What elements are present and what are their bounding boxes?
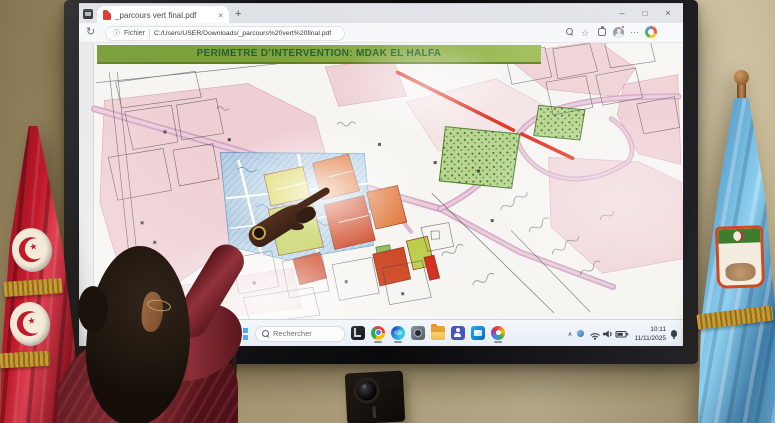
pdf-icon <box>103 10 111 20</box>
tab-title: _parcours vert final.pdf <box>115 11 214 20</box>
windows-taskbar: Rechercher ∧ <box>79 319 683 346</box>
status-icon[interactable] <box>577 330 584 337</box>
browser-tab[interactable]: _parcours vert final.pdf × <box>97 6 229 24</box>
search-icon <box>262 330 269 337</box>
address-scheme-label: Fichier <box>124 30 145 37</box>
dark-app-icon <box>351 326 365 340</box>
volume-icon <box>603 330 609 337</box>
taskbar-app-outlook[interactable] <box>471 325 485 343</box>
webcam <box>345 371 406 423</box>
active-app-indicator <box>394 341 402 343</box>
tray-status-icons[interactable] <box>589 328 629 340</box>
tv-screen: _parcours vert final.pdf × + – □ × ↻ ⓘ F… <box>64 0 698 364</box>
more-menu-icon[interactable]: … <box>630 24 639 36</box>
windows-desktop: _parcours vert final.pdf × + – □ × ↻ ⓘ F… <box>79 3 683 346</box>
bookmark-star-icon[interactable]: ☆ <box>581 27 589 39</box>
taskbar-clock[interactable]: 10:11 11/11/2025 <box>634 325 666 343</box>
clock-date: 11/11/2025 <box>634 334 666 343</box>
flag-pole-finial <box>734 70 749 85</box>
pdf-viewer: PERIMETRE D’INTERVENTION: MDAK EL HALFA <box>79 43 683 319</box>
wifi-icon <box>594 337 596 339</box>
camera-app-icon <box>411 326 425 340</box>
new-tab-button[interactable]: + <box>235 7 241 21</box>
map-pdf-page[interactable] <box>79 43 683 319</box>
emblem-ribbon <box>718 228 760 243</box>
edge-icon <box>391 326 405 340</box>
reload-icon[interactable]: ↻ <box>86 25 95 38</box>
taskbar-app-explorer[interactable] <box>431 325 445 343</box>
address-bar[interactable]: ⓘ Fichier C:/Users/USER/Downloads/_parco… <box>105 26 345 41</box>
address-url: C:/Users/USER/Downloads/_parcours%20vert… <box>154 30 337 37</box>
notification-badge <box>621 25 625 29</box>
window-minimize-button[interactable]: – <box>611 4 633 23</box>
taskbar-search[interactable]: Rechercher <box>255 326 345 342</box>
info-icon[interactable]: ⓘ <box>113 28 120 38</box>
taskbar-app-dark[interactable] <box>351 325 365 343</box>
search-icon[interactable] <box>566 28 573 35</box>
taskbar-app-edge[interactable] <box>391 325 405 343</box>
municipal-flag <box>693 58 775 423</box>
taskbar-center: Rechercher <box>235 320 505 346</box>
webcam-lens-icon <box>353 377 380 404</box>
municipal-emblem <box>715 225 765 289</box>
chrome-icon <box>371 326 385 340</box>
app-window-icon[interactable] <box>83 9 93 19</box>
webcam-bracket <box>381 373 400 390</box>
tunisian-flag-drape <box>0 126 80 423</box>
gold-fringe <box>0 351 50 369</box>
window-close-button[interactable]: × <box>657 4 679 23</box>
active-app-indicator <box>494 341 502 343</box>
taskbar-app-chrome[interactable] <box>371 325 385 343</box>
search-placeholder: Rechercher <box>273 329 312 338</box>
notification-bell-icon[interactable] <box>671 330 677 337</box>
teams-icon <box>451 326 465 340</box>
webcam-slot <box>372 406 376 418</box>
active-app-indicator <box>374 341 382 343</box>
tunisian-flag: ★ ★ <box>0 126 80 423</box>
clock-time: 10:11 <box>634 325 666 334</box>
pdf-title-banner: PERIMETRE D’INTERVENTION: MDAK EL HALFA <box>97 45 541 64</box>
outlook-icon <box>471 326 485 340</box>
address-divider <box>149 29 150 38</box>
taskbar-app-colorful[interactable] <box>491 325 505 343</box>
chrome-profile-icon[interactable] <box>645 26 657 38</box>
window-maximize-button[interactable]: □ <box>634 4 656 23</box>
browser-toolbar: ↻ ⓘ Fichier C:/Users/USER/Downloads/_par… <box>79 23 683 43</box>
extensions-icon[interactable] <box>598 28 606 36</box>
tab-close-icon[interactable]: × <box>218 11 223 20</box>
file-explorer-icon <box>431 326 445 340</box>
star-icon: ★ <box>27 315 37 327</box>
system-tray: ∧ 10:11 <box>568 320 677 346</box>
taskbar-app-teams[interactable] <box>451 325 465 343</box>
start-button-icon[interactable] <box>235 327 249 341</box>
tray-chevron-icon[interactable]: ∧ <box>568 330 573 338</box>
browser-tabstrip: _parcours vert final.pdf × + – □ × <box>79 3 683 23</box>
photo-scene: _parcours vert final.pdf × + – □ × ↻ ⓘ F… <box>0 0 775 423</box>
emblem-art <box>725 262 756 281</box>
colorful-app-icon <box>491 326 505 340</box>
taskbar-app-camera[interactable] <box>411 325 425 343</box>
